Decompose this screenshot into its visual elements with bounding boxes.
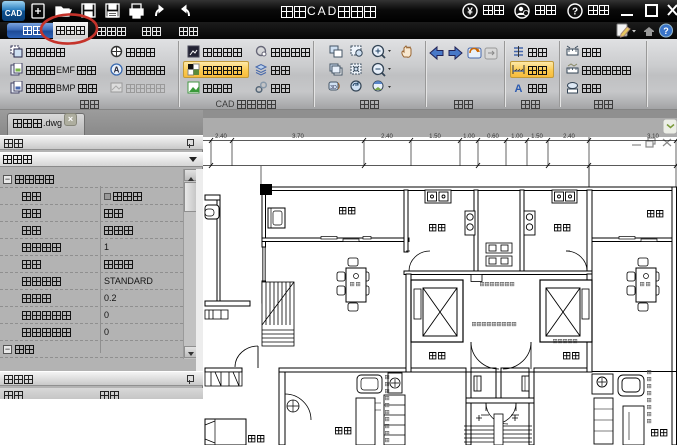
svg-text:3.70: 3.70: [292, 134, 304, 140]
svg-text:2.40: 2.40: [215, 134, 227, 140]
svg-text:3D: 3D: [330, 85, 337, 91]
svg-text:2.40: 2.40: [381, 134, 393, 140]
svg-text:3.10: 3.10: [647, 134, 659, 140]
svg-text:1.50: 1.50: [531, 134, 543, 140]
svg-text:1.50: 1.50: [429, 134, 441, 140]
svg-text:A: A: [515, 83, 523, 94]
svg-text:?: ?: [663, 26, 669, 36]
svg-text:1.00: 1.00: [511, 134, 523, 140]
svg-text:2.40: 2.40: [563, 134, 575, 140]
svg-text:?: ?: [572, 7, 578, 18]
svg-text:A: A: [114, 66, 120, 75]
svg-text:1.00: 1.00: [463, 134, 475, 140]
svg-text:0.60: 0.60: [487, 134, 499, 140]
svg-text:¥: ¥: [467, 7, 473, 18]
